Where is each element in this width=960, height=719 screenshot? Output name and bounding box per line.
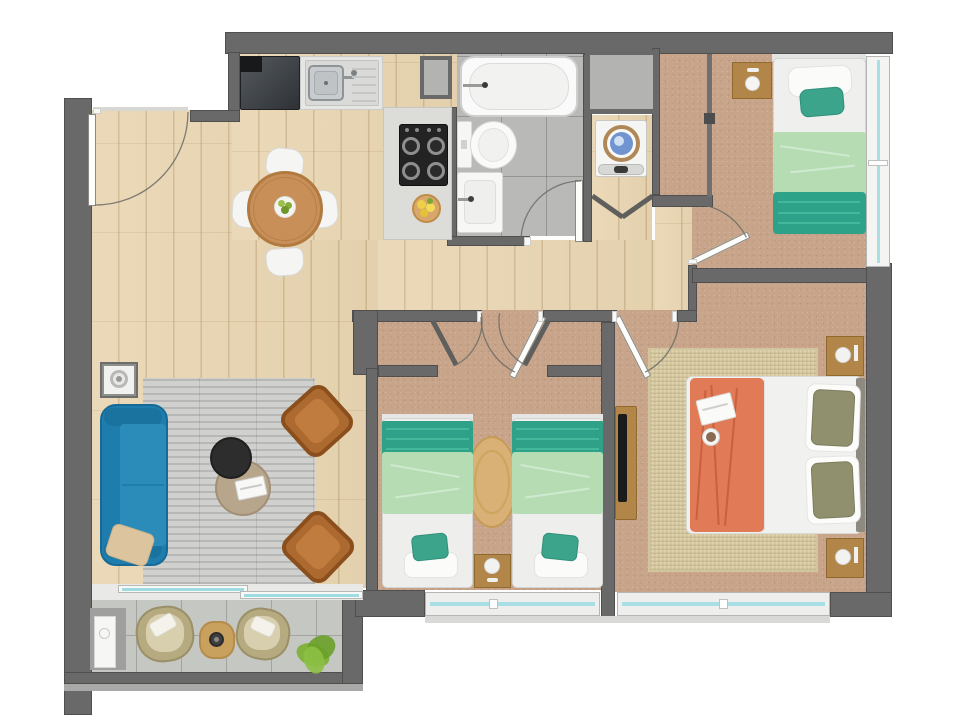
stove-knob — [415, 128, 419, 132]
twin-lamp — [484, 558, 500, 574]
twin-bed-a-cushion — [411, 532, 450, 562]
wall-bedroom2-doorhead — [652, 195, 713, 207]
wall-twin-master — [601, 322, 615, 617]
washer-base-dark — [614, 166, 628, 173]
drainboard-groove — [352, 84, 376, 86]
coffee-table-black — [210, 437, 252, 479]
twin-bed-b-teal-stripe — [516, 428, 599, 430]
entry-door-jamb — [93, 108, 101, 114]
tub-faucet-arm — [463, 84, 483, 87]
master-pillow-olive-1 — [811, 389, 856, 447]
drainboard-groove — [352, 76, 376, 78]
stove-burner — [402, 137, 420, 155]
bed2-nightstand-handle — [747, 68, 759, 72]
wall-entry-horizontal — [190, 110, 240, 122]
twin-round-rug-ring — [474, 450, 510, 514]
stove-knob — [427, 128, 431, 132]
wall-hall-3 — [677, 310, 697, 322]
stove-burner — [402, 162, 420, 180]
window-twin-glass — [430, 602, 595, 606]
bed2-cushion — [799, 86, 845, 118]
twin-door-jamb-left — [477, 311, 482, 322]
master-door-jamb-left — [612, 311, 617, 322]
wall-closet-right — [547, 365, 603, 377]
stove-burner — [427, 137, 445, 155]
lemon — [420, 209, 428, 217]
sofa-seat-seam — [122, 484, 164, 486]
bed2-foot-stripe — [778, 212, 860, 214]
bed2-foot-stripe — [778, 222, 860, 224]
wall-twin-pier — [353, 310, 378, 375]
closet-partition-tick — [704, 113, 715, 124]
twin-bed-b-duvet — [512, 452, 603, 514]
master-cup-coffee — [706, 432, 716, 442]
wall-top — [225, 32, 893, 54]
master-door-jamb-right — [672, 311, 677, 322]
stove-knob — [437, 128, 441, 132]
heater-unit — [94, 616, 116, 668]
washer-laundry-highlight — [614, 136, 624, 146]
entry-threshold — [93, 107, 188, 111]
wall-twin-left — [366, 368, 378, 592]
wood-hallway — [378, 240, 697, 312]
window-twin-mullion — [489, 599, 498, 609]
toilet-bowl-inner — [478, 128, 509, 162]
drainboard-groove — [352, 100, 376, 102]
drainboard-groove — [352, 92, 376, 94]
bathroom-door-jamb — [524, 237, 531, 246]
twin-bed-a-teal-stripe — [386, 438, 469, 440]
twin-bed-b-teal-stripe — [516, 448, 599, 450]
twin-bed-b-cushion — [541, 532, 580, 562]
bathroom-door-leaf — [575, 180, 583, 242]
wall-closet-left — [378, 365, 438, 377]
vanity-basin — [464, 180, 496, 224]
wall-hall-2 — [543, 310, 617, 322]
lemon-leaf — [427, 198, 433, 204]
drainboard-groove — [352, 68, 376, 70]
stove-knob — [405, 128, 409, 132]
window-east-mullion — [868, 160, 888, 166]
toilet-button — [461, 140, 467, 149]
master-nightstand-1-handle — [854, 345, 858, 361]
bed2-foot-stripe — [778, 201, 860, 203]
master-nightstand-2-handle — [854, 547, 858, 563]
twin-door-jamb-right — [538, 311, 543, 322]
wall-bedroom2-bottom — [692, 268, 892, 283]
master-lamp-1 — [835, 347, 851, 363]
vanity-faucet-dot — [468, 196, 474, 202]
entry-door-leaf — [88, 114, 96, 206]
bed2-lamp — [745, 76, 760, 91]
tv-screen — [618, 414, 627, 502]
duct-shaft-laundry — [585, 50, 658, 114]
balcony-slider-glass-1 — [122, 588, 244, 591]
wall-bath-bottom — [447, 236, 530, 246]
wall-master-corner — [830, 592, 892, 617]
master-lamp-2 — [835, 549, 851, 565]
twin-bed-a-teal-stripe — [386, 448, 469, 450]
lime — [281, 206, 289, 214]
closet-partition-bedroom2 — [707, 54, 712, 197]
stove-burner — [427, 162, 445, 180]
window-master-mullion — [719, 599, 728, 609]
heater-dial — [99, 628, 110, 639]
fridge-corner — [240, 56, 262, 72]
twin-bed-b-teal-stripe — [516, 438, 599, 440]
floorplan-canvas — [0, 0, 960, 719]
duct-shaft-kitchen — [420, 56, 452, 99]
balcony-slider-glass-2 — [244, 594, 359, 597]
lemon — [417, 200, 426, 209]
bedroom2-door-jamb — [688, 259, 697, 264]
master-pillow-olive-2 — [811, 461, 856, 519]
twin-nightstand-handle — [487, 578, 498, 582]
facade-band-south — [425, 616, 830, 623]
patio-table-center-dot — [214, 637, 219, 642]
twin-bed-a-teal-stripe — [386, 428, 469, 430]
tub-faucet-dot — [482, 82, 488, 88]
twin-bed-a-duvet — [382, 452, 473, 514]
wall-right — [866, 263, 892, 617]
sink-drain-dot — [324, 81, 328, 85]
wall-corner-southwest — [355, 590, 425, 617]
facade-band-balcony — [64, 684, 363, 691]
wall-balcony-bottom — [64, 672, 363, 684]
wall-speaker-dot — [116, 376, 122, 382]
